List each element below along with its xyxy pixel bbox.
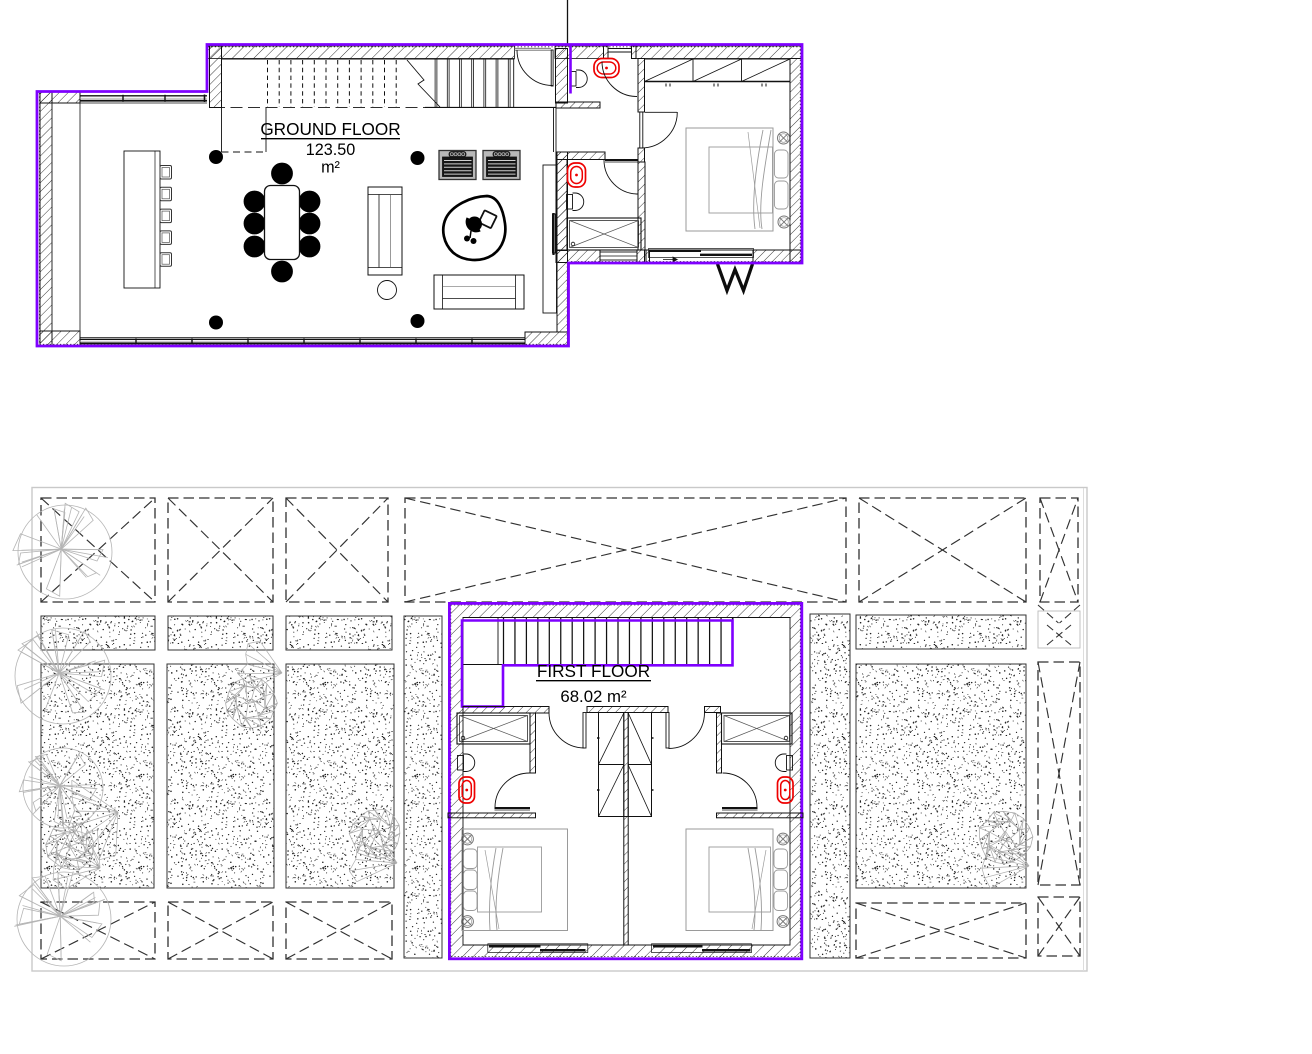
- svg-text:GROUND FLOOR: GROUND FLOOR: [260, 119, 400, 139]
- svg-text:m²: m²: [321, 159, 340, 177]
- svg-text:FIRST FLOOR: FIRST FLOOR: [537, 661, 650, 681]
- svg-text:68.02 m²: 68.02 m²: [560, 687, 627, 706]
- svg-text:123.50: 123.50: [306, 141, 356, 159]
